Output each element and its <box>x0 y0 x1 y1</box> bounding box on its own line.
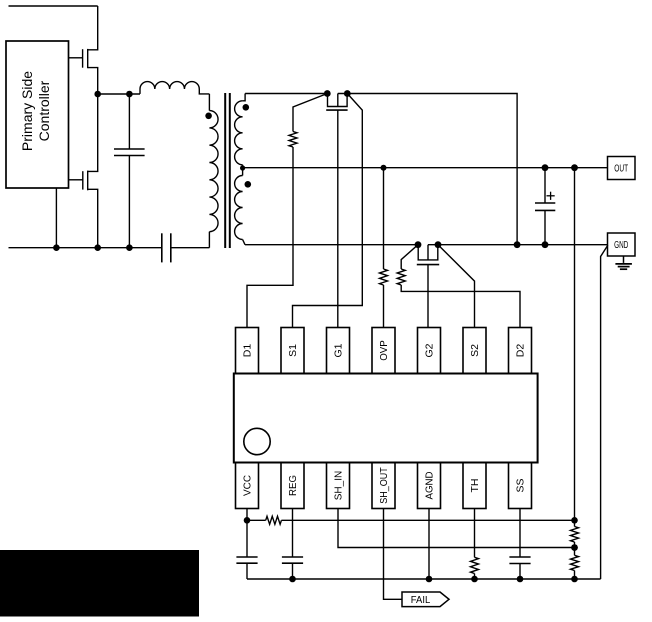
svg-text:AGND: AGND <box>424 471 436 499</box>
svg-text:VCC: VCC <box>242 475 254 496</box>
svg-text:TH: TH <box>469 479 481 493</box>
svg-text:G2: G2 <box>424 343 436 357</box>
svg-text:OVP: OVP <box>378 340 390 361</box>
svg-text:Primary Side: Primary Side <box>19 71 35 151</box>
svg-text:OUT: OUT <box>614 164 628 175</box>
svg-text:SH_IN: SH_IN <box>333 471 345 501</box>
svg-text:S1: S1 <box>287 344 299 357</box>
svg-text:SS: SS <box>515 478 527 492</box>
svg-text:D2: D2 <box>515 344 527 358</box>
svg-text:Controller: Controller <box>36 80 52 141</box>
svg-text:SH_OUT: SH_OUT <box>378 467 390 504</box>
svg-text:D1: D1 <box>242 344 254 358</box>
svg-text:REG: REG <box>287 475 299 496</box>
svg-text:S2: S2 <box>469 344 481 357</box>
svg-text:FAIL: FAIL <box>411 594 431 606</box>
svg-text:G1: G1 <box>333 343 345 357</box>
svg-text:GND: GND <box>614 240 628 251</box>
